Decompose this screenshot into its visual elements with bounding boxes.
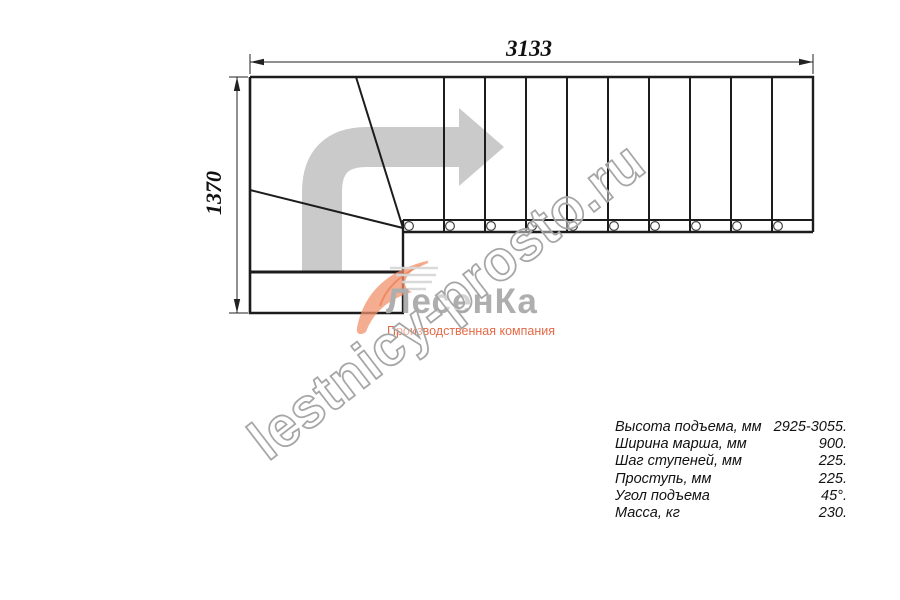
spec-label: Проступь, мм <box>615 471 711 488</box>
dimension-height: 1370 <box>201 77 248 313</box>
spec-row: Угол подъема 45°. <box>615 488 847 505</box>
company-logo: ЛесенКа Производственная компания <box>340 248 570 353</box>
spec-label: Шаг ступеней, мм <box>615 453 742 470</box>
spec-value: 225. <box>819 453 847 470</box>
spec-label: Ширина марша, мм <box>615 436 747 453</box>
spec-label: Высота подъема, мм <box>615 419 762 436</box>
logo-company-subtitle: Производственная компания <box>387 324 567 338</box>
width-dimension-label: 3133 <box>505 36 552 61</box>
tread-divider-lines <box>444 77 772 232</box>
spec-label: Масса, кг <box>615 505 680 522</box>
baluster-circles <box>405 222 783 231</box>
spec-table: Высота подъема, мм 2925-3055. Ширина мар… <box>615 419 847 522</box>
spec-row: Масса, кг 230. <box>615 505 847 522</box>
dim-arrow-right <box>799 59 813 65</box>
dim-arrow-left <box>250 59 264 65</box>
spec-value: 45°. <box>821 488 847 505</box>
winder-tread-lines <box>250 77 403 228</box>
spec-row: Шаг ступеней, мм 225. <box>615 453 847 470</box>
stair-drawing-page: 3133 1370 ЛесенКа Производственная компа… <box>0 0 900 600</box>
dim-arrow-top <box>234 77 240 91</box>
spec-value: 900. <box>819 436 847 453</box>
spec-value: 225. <box>819 471 847 488</box>
spec-row: Проступь, мм 225. <box>615 471 847 488</box>
logo-company-name: ЛесенКа <box>386 282 566 322</box>
spec-label: Угол подъема <box>615 488 710 505</box>
spec-value: 230. <box>819 505 847 522</box>
height-dimension-label: 1370 <box>201 171 226 215</box>
dimension-width: 3133 <box>250 36 813 74</box>
spec-value: 2925-3055. <box>774 419 847 436</box>
dim-arrow-bottom <box>234 299 240 313</box>
spec-row: Ширина марша, мм 900. <box>615 436 847 453</box>
spec-row: Высота подъема, мм 2925-3055. <box>615 419 847 436</box>
